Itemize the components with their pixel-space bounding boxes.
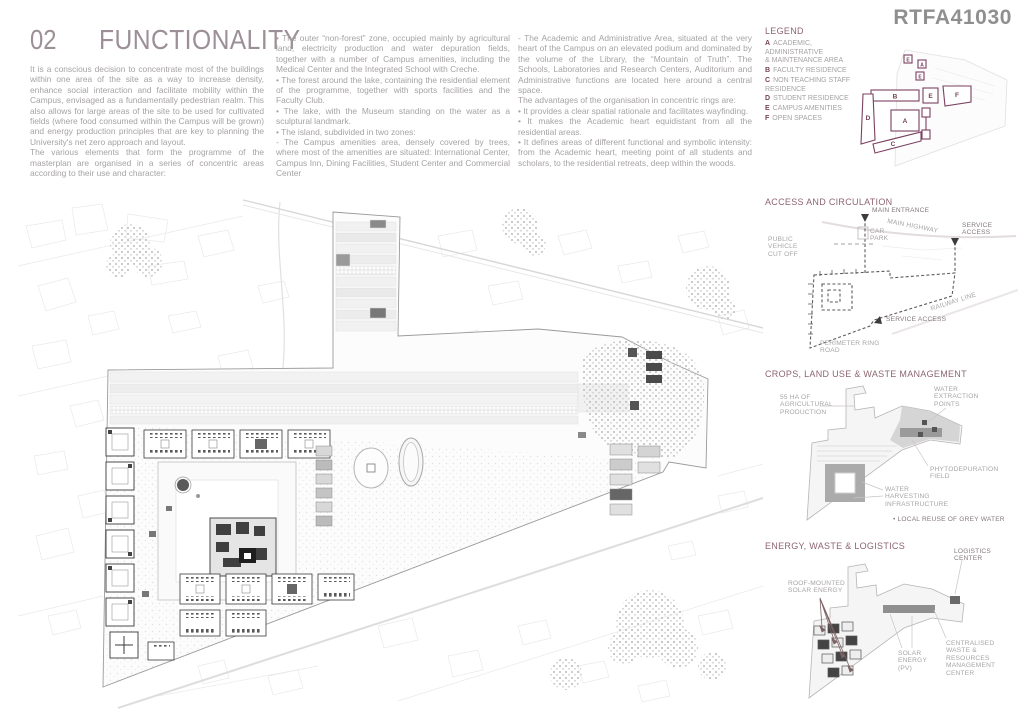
svg-text:B: B bbox=[893, 94, 898, 101]
label-car-park: CAR PARK bbox=[870, 228, 888, 243]
main-highway-line bbox=[243, 200, 763, 328]
label-phytodepuration: PHYTODEPURATION FIELD bbox=[930, 466, 998, 481]
text-column-3: - The Academic and Administrative Area, … bbox=[518, 33, 752, 168]
section-title: FUNCTIONALITY bbox=[99, 24, 300, 56]
paragraph: The various elements that form the progr… bbox=[30, 147, 264, 178]
pv-bar bbox=[883, 605, 935, 613]
legend-map-context bbox=[895, 50, 1007, 166]
svg-text:E: E bbox=[928, 93, 933, 100]
crops-heading: CROPS, LAND USE & WASTE MANAGEMENT bbox=[765, 369, 967, 379]
svg-text:D: D bbox=[866, 115, 871, 122]
paragraph: It is a conscious decision to concentrat… bbox=[30, 64, 264, 147]
text-column-1: It is a conscious decision to concentrat… bbox=[30, 64, 264, 178]
plaza-circle bbox=[175, 477, 191, 493]
label-service-access-mid: SERVICE ACCESS bbox=[886, 316, 946, 323]
paragraph: • The lake, with the Museum standing on … bbox=[276, 106, 510, 127]
presentation-board: 02FUNCTIONALITY RTFA41030 It is a consci… bbox=[0, 0, 1024, 724]
west-courtyard-blocks bbox=[106, 428, 138, 658]
svg-text:C: C bbox=[891, 141, 896, 148]
svg-text:F: F bbox=[955, 92, 959, 99]
text-column-2: • The outer “non-forest” zone, occupied … bbox=[276, 33, 510, 179]
paragraph: - The Campus amenities area, densely cov… bbox=[276, 137, 510, 179]
legend-key-map: E A E B E F A D C bbox=[835, 34, 1015, 190]
label-solar-pv: SOLAR ENERGY (PV) bbox=[898, 650, 927, 672]
paragraph: • The outer “non-forest” zone, occupied … bbox=[276, 33, 510, 75]
svg-text:A: A bbox=[903, 118, 908, 125]
label-water-extraction: WATER EXTRACTION POINTS bbox=[934, 386, 979, 408]
crops-diagram: 55 HA OF AGRICULTURAL PRODUCTION WATER E… bbox=[762, 380, 1018, 540]
academic-complex bbox=[210, 518, 276, 576]
campus-masterplan bbox=[18, 196, 763, 716]
label-perimeter-ring: PERIMETER RING ROAD bbox=[820, 340, 880, 355]
energy-diagram-drawing bbox=[762, 548, 1018, 718]
paragraph: - The Academic and Administrative Area, … bbox=[518, 33, 752, 95]
label-service-access-top: SERVICE ACCESS bbox=[962, 222, 992, 237]
svg-text:A: A bbox=[920, 63, 924, 69]
board-code: RTFA41030 bbox=[893, 6, 1012, 30]
paragraph: • It defines areas of different function… bbox=[518, 137, 752, 168]
label-waste-center: CENTRALISED WASTE & RESOURCES MANAGEMENT… bbox=[946, 640, 995, 677]
label-roof-solar: ROOF-MOUNTED SOLAR ENERGY bbox=[788, 580, 845, 595]
label-public-cutoff: PUBLIC VEHICLE CUT OFF bbox=[768, 236, 798, 258]
label-agricultural: 55 HA OF AGRICULTURAL PRODUCTION bbox=[780, 394, 833, 416]
paragraph: • It makes the Academic heart equidistan… bbox=[518, 116, 752, 137]
paragraph: • The island, subdivided in two zones: bbox=[276, 127, 510, 137]
running-track bbox=[399, 438, 423, 486]
section-number: 02 bbox=[30, 24, 56, 56]
paragraph: • It provides a clear spatial rationale … bbox=[518, 106, 752, 116]
lake-museum-circle bbox=[354, 448, 388, 488]
field-band bbox=[110, 372, 628, 424]
label-grey-water: • LOCAL REUSE OF GREY WATER bbox=[893, 516, 1005, 523]
podium-ring bbox=[825, 464, 865, 502]
legend-heading: LEGEND bbox=[765, 26, 804, 36]
access-diagram: MAIN ENTRANCE MAIN HIGHWAY SERVICE ACCES… bbox=[762, 206, 1018, 364]
label-main-entrance: MAIN ENTRANCE bbox=[872, 207, 929, 214]
paragraph: • The forest around the lake, containing… bbox=[276, 75, 510, 106]
label-logistics: LOGISTICS CENTER bbox=[954, 548, 991, 563]
logistics-box bbox=[950, 596, 960, 604]
energy-diagram: LOGISTICS CENTER ROOF-MOUNTED SOLAR ENER… bbox=[762, 548, 1018, 718]
paragraph: The advantages of the organisation in co… bbox=[518, 95, 752, 105]
label-water-harvesting: WATER HARVESTING INFRASTRUCTURE bbox=[885, 486, 948, 508]
